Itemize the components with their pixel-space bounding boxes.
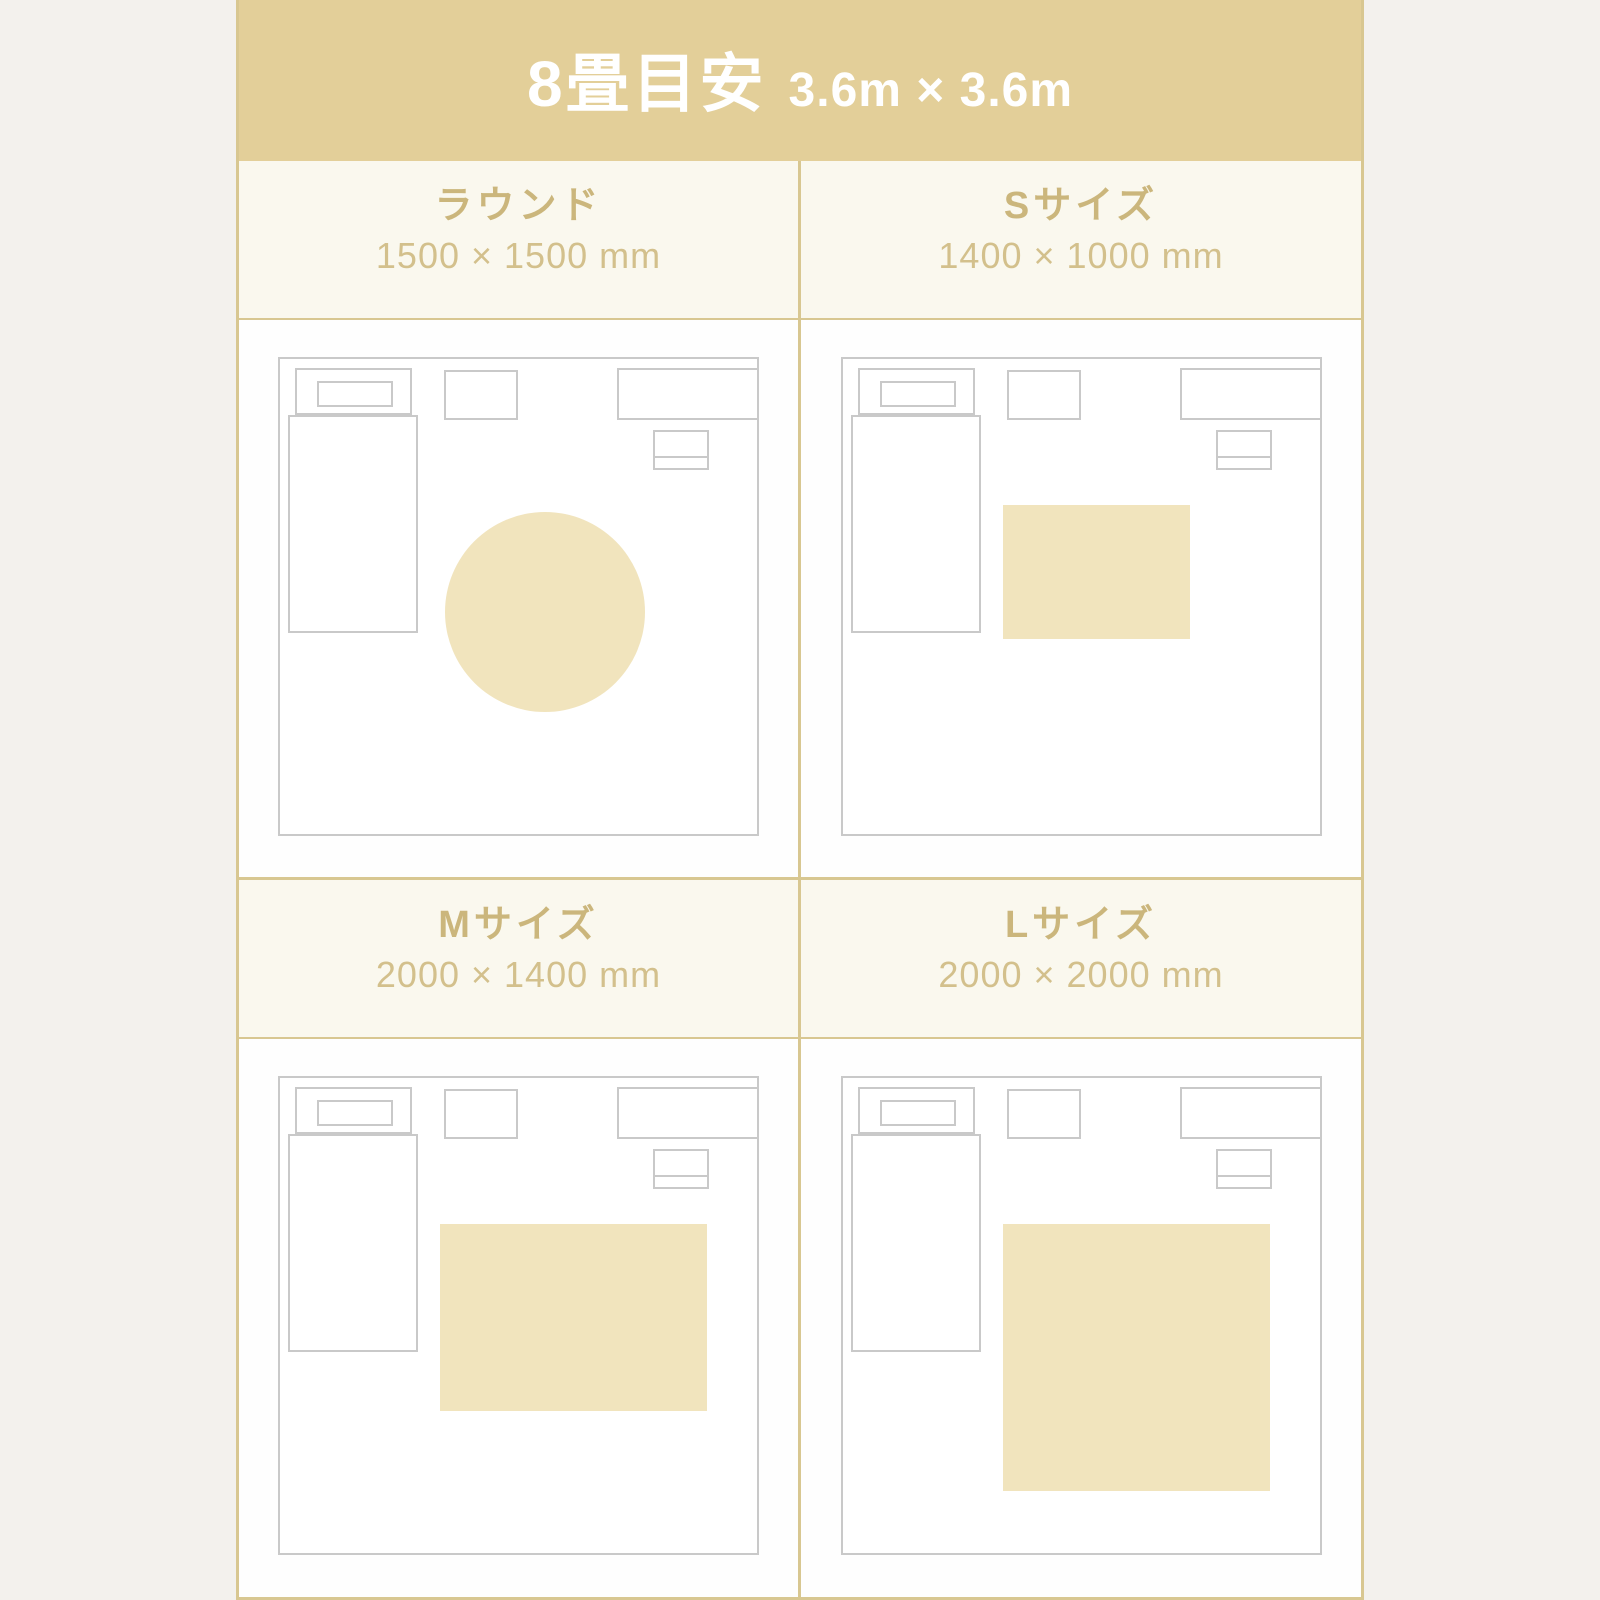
desk	[617, 368, 759, 420]
bed-pillow	[880, 381, 956, 407]
cabinet	[444, 1089, 518, 1139]
desk-chair-backrest-line	[653, 1175, 709, 1177]
room-diagram	[801, 320, 1361, 880]
desk-chair-backrest-line	[653, 456, 709, 458]
rug-round	[445, 512, 645, 712]
rug-rect	[1003, 505, 1190, 639]
size-comparison-grid: ラウンド 1500 × 1500 mm Sサイズ 1400 × 1000 mm	[239, 161, 1361, 1597]
desk-chair-backrest-line	[1216, 456, 1272, 458]
page-title: 8畳目安	[527, 52, 767, 116]
cabinet	[1007, 370, 1081, 420]
rug-rect	[440, 1224, 707, 1411]
bed-pillow	[317, 1100, 393, 1126]
header-band: 8畳目安 3.6m × 3.6m	[239, 0, 1361, 161]
panel-title-area: Sサイズ 1400 × 1000 mm	[801, 161, 1361, 320]
room-outline	[841, 357, 1322, 836]
desk-chair	[1216, 430, 1272, 470]
desk-chair-backrest-line	[1216, 1175, 1272, 1177]
size-guide-sheet: 8畳目安 3.6m × 3.6m ラウンド 1500 × 1500 mm	[236, 0, 1364, 1600]
desk	[617, 1087, 759, 1139]
panel-title-area: ラウンド 1500 × 1500 mm	[239, 161, 798, 320]
panel-title-area: Mサイズ 2000 × 1400 mm	[239, 880, 798, 1039]
room-diagram	[239, 320, 798, 880]
bed-pillow	[317, 381, 393, 407]
desk-chair	[653, 430, 709, 470]
bed	[288, 415, 418, 633]
room-dimensions-label: 3.6m × 3.6m	[789, 67, 1074, 115]
desk	[1180, 368, 1322, 420]
bed-pillow	[880, 1100, 956, 1126]
bed	[851, 1134, 981, 1352]
room-outline	[278, 357, 759, 836]
rug-rect	[1003, 1224, 1270, 1491]
panel-size-name: Sサイズ	[1004, 183, 1158, 229]
panel-size-name: Lサイズ	[1005, 902, 1157, 948]
size-panel-4: Lサイズ 2000 × 2000 mm	[801, 880, 1361, 1597]
room-outline	[278, 1076, 759, 1555]
panel-size-name: ラウンド	[434, 183, 602, 229]
room-diagram	[239, 1039, 798, 1597]
cabinet	[1007, 1089, 1081, 1139]
panel-size-dimensions: 1400 × 1000 mm	[938, 235, 1223, 277]
size-panel-2: Sサイズ 1400 × 1000 mm	[801, 161, 1361, 880]
bed	[288, 1134, 418, 1352]
room-diagram	[801, 1039, 1361, 1597]
panel-size-dimensions: 2000 × 2000 mm	[938, 954, 1223, 996]
bed	[851, 415, 981, 633]
desk	[1180, 1087, 1322, 1139]
cabinet	[444, 370, 518, 420]
panel-title-area: Lサイズ 2000 × 2000 mm	[801, 880, 1361, 1039]
size-panel-3: Mサイズ 2000 × 1400 mm	[239, 880, 801, 1597]
room-outline	[841, 1076, 1322, 1555]
desk-chair	[1216, 1149, 1272, 1189]
panel-size-name: Mサイズ	[438, 902, 599, 948]
panel-size-dimensions: 2000 × 1400 mm	[376, 954, 661, 996]
size-panel-1: ラウンド 1500 × 1500 mm	[239, 161, 801, 880]
panel-size-dimensions: 1500 × 1500 mm	[376, 235, 661, 277]
desk-chair	[653, 1149, 709, 1189]
